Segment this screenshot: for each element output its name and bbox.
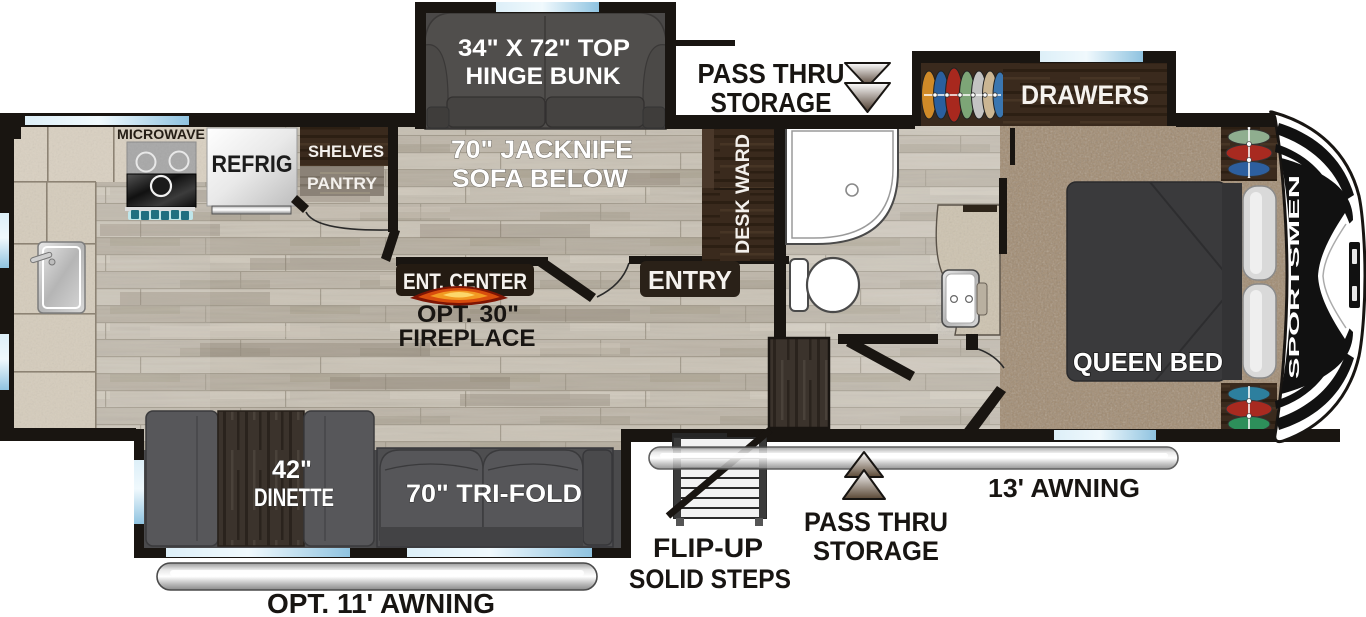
svg-text:SHELVES: SHELVES — [308, 142, 384, 161]
svg-text:ENTRY: ENTRY — [648, 265, 732, 295]
svg-text:MICROWAVE: MICROWAVE — [117, 127, 205, 142]
svg-text:OPT. 11' AWNING: OPT. 11' AWNING — [267, 588, 495, 617]
svg-text:SPORTSMEN: SPORTSMEN — [1286, 175, 1303, 379]
svg-text:34" X 72" TOP: 34" X 72" TOP — [458, 35, 630, 62]
svg-text:70" TRI-FOLD: 70" TRI-FOLD — [406, 480, 582, 508]
svg-text:HINGE BUNK: HINGE BUNK — [466, 63, 621, 90]
svg-text:STORAGE: STORAGE — [813, 536, 939, 566]
svg-text:PASS THRU: PASS THRU — [804, 507, 948, 537]
svg-text:13' AWNING: 13' AWNING — [988, 473, 1140, 503]
svg-text:QUEEN BED: QUEEN BED — [1073, 347, 1223, 377]
svg-text:DRAWERS: DRAWERS — [1021, 80, 1149, 110]
svg-text:42": 42" — [272, 456, 312, 484]
svg-text:70" JACKNIFE: 70" JACKNIFE — [451, 136, 633, 164]
svg-text:PASS THRU: PASS THRU — [698, 58, 845, 89]
svg-text:FLIP-UP: FLIP-UP — [653, 533, 763, 563]
svg-text:REFRIG: REFRIG — [212, 151, 293, 178]
svg-text:PANTRY: PANTRY — [307, 174, 378, 193]
svg-text:DESK WARD: DESK WARD — [733, 134, 754, 254]
svg-text:SOFA BELOW: SOFA BELOW — [452, 165, 628, 193]
svg-text:SOLID STEPS: SOLID STEPS — [629, 564, 791, 594]
svg-text:OPT. 30": OPT. 30" — [417, 301, 519, 328]
svg-text:FIREPLACE: FIREPLACE — [399, 325, 536, 352]
svg-text:DINETTE: DINETTE — [254, 484, 334, 512]
svg-text:STORAGE: STORAGE — [711, 87, 832, 118]
